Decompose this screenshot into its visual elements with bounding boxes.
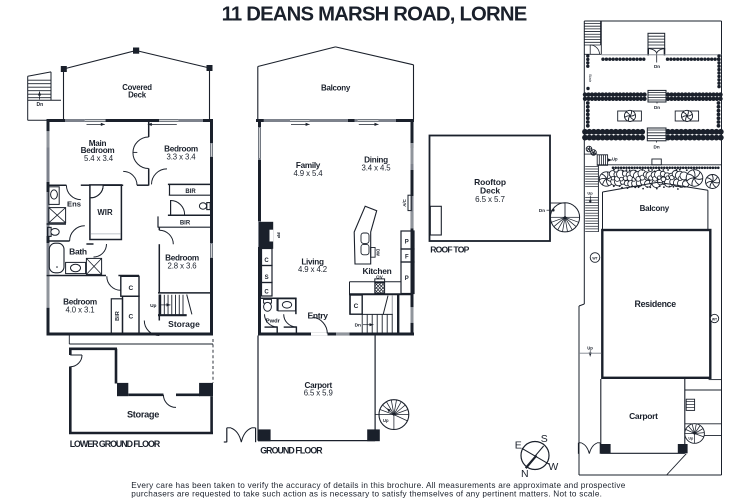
svg-text:4.0 x 3.1: 4.0 x 3.1: [65, 305, 94, 314]
svg-text:WT: WT: [712, 317, 718, 321]
svg-text:Up: Up: [587, 346, 593, 351]
svg-text:BIR: BIR: [115, 311, 121, 321]
svg-text:S: S: [265, 275, 269, 281]
svg-text:P: P: [405, 276, 409, 282]
svg-text:2.8 x 3.6: 2.8 x 3.6: [167, 262, 196, 271]
svg-text:DW: DW: [376, 249, 381, 256]
svg-text:C: C: [264, 289, 269, 295]
svg-text:ROOF TOP: ROOF TOP: [430, 245, 469, 255]
svg-text:Up: Up: [612, 157, 618, 162]
svg-text:Carport: Carport: [629, 411, 658, 421]
svg-text:E: E: [515, 440, 522, 452]
svg-text:Deck: Deck: [480, 185, 500, 195]
svg-text:LOWER GROUND FLOOR: LOWER GROUND FLOOR: [70, 439, 161, 449]
svg-text:Storage: Storage: [168, 319, 200, 329]
svg-text:purchasers are requested to ta: purchasers are requested to take such ac…: [131, 490, 602, 499]
svg-text:C: C: [354, 303, 359, 310]
svg-text:GROUND FLOOR: GROUND FLOOR: [260, 445, 323, 455]
svg-text:Up: Up: [688, 437, 694, 441]
svg-text:Dn: Dn: [654, 145, 660, 150]
svg-text:A/C: A/C: [402, 198, 407, 206]
svg-text:3.3 x 3.4: 3.3 x 3.4: [166, 152, 196, 161]
svg-text:C: C: [128, 313, 133, 320]
svg-text:S: S: [541, 433, 548, 445]
svg-text:5.4 x 3.4: 5.4 x 3.4: [84, 154, 114, 163]
svg-text:Dn: Dn: [654, 64, 660, 69]
svg-text:6.5 x 5.7: 6.5 x 5.7: [475, 195, 505, 204]
svg-text:Bath: Bath: [69, 247, 87, 257]
svg-text:Dn: Dn: [36, 102, 43, 108]
svg-text:Ens: Ens: [67, 200, 81, 209]
svg-text:11 DEANS MARSH ROAD, LORNE: 11 DEANS MARSH ROAD, LORNE: [222, 4, 527, 26]
svg-text:N: N: [521, 468, 529, 480]
svg-text:Up: Up: [383, 418, 389, 423]
svg-text:WT: WT: [592, 256, 598, 260]
svg-text:4.9 x 5.4: 4.9 x 5.4: [293, 169, 323, 178]
svg-text:F: F: [405, 255, 409, 261]
svg-text:WIR: WIR: [97, 208, 113, 217]
svg-text:P: P: [405, 240, 409, 246]
svg-text:Dn: Dn: [355, 323, 361, 329]
svg-text:Dn: Dn: [654, 105, 660, 110]
svg-text:Up: Up: [150, 303, 156, 309]
svg-text:Residence: Residence: [635, 299, 677, 309]
svg-text:Stair: Stair: [588, 74, 593, 83]
svg-text:4.9 x 4.2: 4.9 x 4.2: [298, 265, 327, 274]
svg-text:6.5 x 5.9: 6.5 x 5.9: [304, 389, 333, 398]
svg-text:Up: Up: [587, 191, 593, 196]
svg-text:Dn: Dn: [539, 208, 545, 213]
svg-text:3.4 x 4.5: 3.4 x 4.5: [361, 164, 391, 173]
svg-text:C: C: [264, 258, 269, 264]
svg-text:Deck: Deck: [128, 91, 147, 100]
svg-text:Balcony: Balcony: [321, 84, 351, 93]
svg-text:Balcony: Balcony: [640, 204, 670, 213]
svg-text:W: W: [548, 461, 558, 473]
svg-text:Storage: Storage: [127, 410, 159, 420]
svg-text:C: C: [128, 285, 133, 292]
svg-text:BIR: BIR: [180, 221, 191, 227]
svg-text:FP: FP: [276, 232, 281, 238]
svg-text:BIR: BIR: [185, 189, 196, 195]
